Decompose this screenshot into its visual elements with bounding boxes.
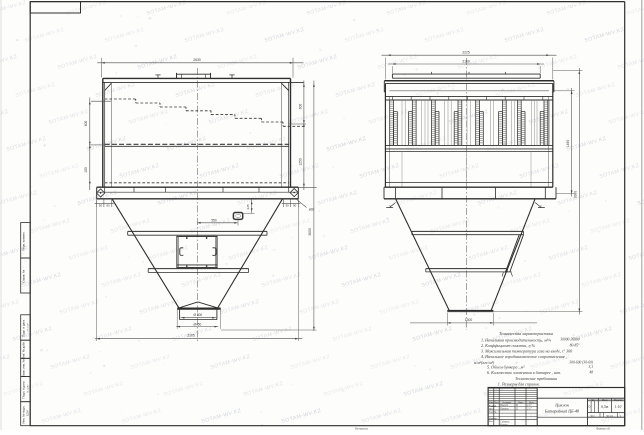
svg-text:Ø 500: Ø 500 [193,313,202,317]
svg-text:Батарейный ЦБ-48: Батарейный ЦБ-48 [544,409,579,414]
svg-text:Перв. примен.: Перв. примен. [22,231,26,250]
svg-text:90: 90 [99,204,103,208]
svg-text:30000-36000: 30000-36000 [560,337,579,341]
svg-text:1250: 1250 [298,158,302,166]
svg-text:150: 150 [84,167,88,173]
svg-text:Техническая характеристика: Техническая характеристика [499,331,553,336]
svg-text:ø92: ø92 [309,207,315,211]
svg-text:80-85°: 80-85° [570,343,580,347]
svg-text:48: 48 [589,370,593,374]
svg-text:1460: 1460 [566,140,570,148]
svg-text:Циклон: Циклон [554,403,569,408]
svg-text:14.12.87: 14.12.87 [27,384,30,394]
svg-text:П: П [515,407,518,410]
svg-text:Лист: Лист [494,402,498,404]
svg-text:550: 550 [211,219,217,223]
svg-text:2.17: 2.17 [527,407,532,410]
svg-text:125: 125 [246,204,250,209]
svg-text:Козлов: Козлов [499,423,508,426]
svg-text:3380: 3380 [574,191,578,199]
svg-text:Т.контр.: Т.контр. [489,412,497,414]
svg-text:Формат А1: Формат А1 [596,426,611,430]
svg-text:Петров: Петров [499,407,509,410]
svg-text:300-600 (30-60): 300-600 (30-60) [569,360,593,364]
svg-text:Подп. и дата: Подп. и дата [22,381,26,398]
svg-text:Н.контр.: Н.контр. [489,418,498,420]
svg-text:1300: 1300 [465,318,473,322]
svg-text:2225: 2225 [462,50,470,54]
svg-text:2630: 2630 [193,58,201,62]
svg-text:Изм: Изм [489,402,493,404]
svg-text:Инв. № дубл.: Инв. № дубл. [22,341,26,359]
svg-text:2100: 2100 [462,59,470,63]
svg-text:3600: 3600 [308,228,312,236]
svg-text:1254: 1254 [26,410,30,416]
svg-text:2105: 2105 [187,333,195,337]
svg-text:Разраб.: Разраб. [489,405,497,407]
svg-text:90: 90 [106,204,110,208]
svg-text:1. Размеры для справок.: 1. Размеры для справок. [498,381,540,386]
svg-text:Ø450: Ø450 [193,322,201,326]
svg-text:Пров.: Пров. [489,408,495,410]
svg-text:Взам. инв. №: Взам. инв. № [22,359,26,377]
svg-text:90: 90 [286,204,290,208]
svg-text:Подп. и дата: Подп. и дата [22,319,26,336]
svg-text:600: 600 [84,121,88,127]
svg-text:600: 600 [298,104,302,110]
svg-text:Подп.: Подп. [518,402,524,404]
svg-text:10.11.87: 10.11.87 [27,322,30,331]
svg-text:Утв.: Утв. [489,421,494,423]
svg-text:Справ. №: Справ. № [22,270,26,283]
svg-text:1:10: 1:10 [615,405,622,409]
svg-text:Копировал: Копировал [354,426,369,430]
svg-text:90: 90 [293,204,297,208]
svg-text:Технические требования: Технические требования [515,376,557,381]
